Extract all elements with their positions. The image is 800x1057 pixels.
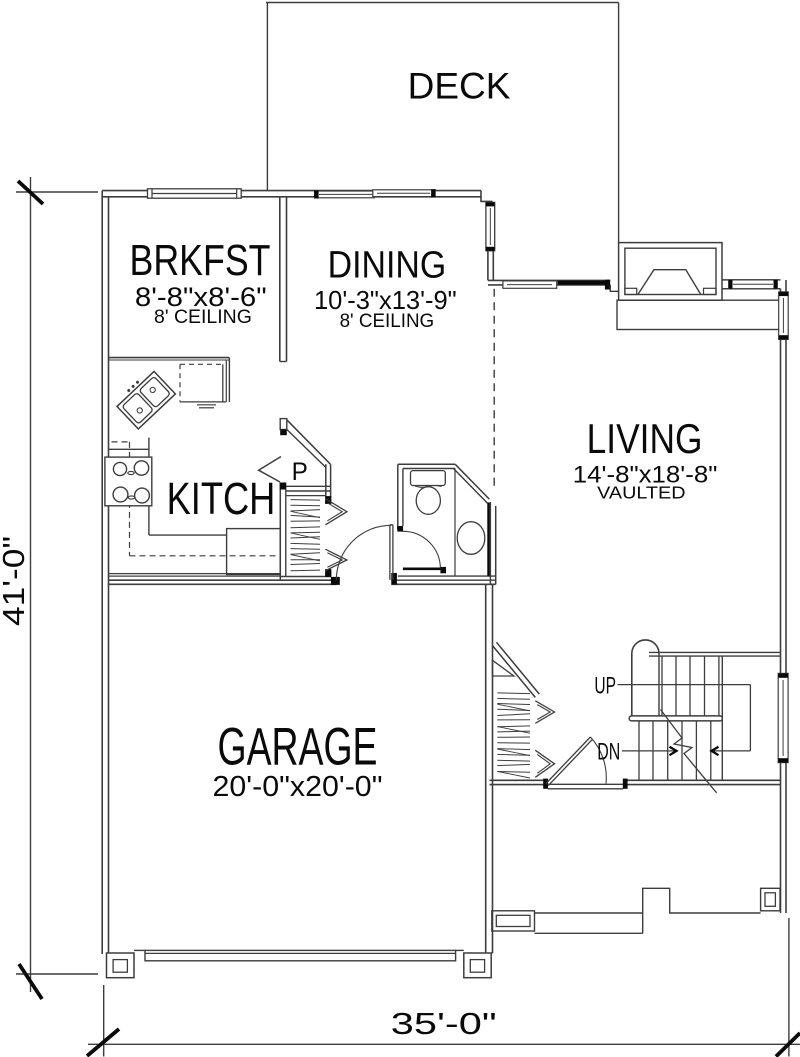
svg-text:DINING: DINING (328, 244, 447, 286)
svg-text:8' CEILING: 8' CEILING (340, 310, 435, 332)
svg-text:35'-0": 35'-0" (391, 1006, 497, 1041)
svg-text:VAULTED: VAULTED (597, 483, 685, 503)
svg-text:8' CEILING: 8' CEILING (154, 306, 252, 328)
svg-text:DN: DN (597, 739, 620, 766)
svg-text:DECK: DECK (408, 64, 511, 106)
svg-text:LIVING: LIVING (587, 415, 703, 462)
svg-text:41'-0": 41'-0" (0, 536, 31, 626)
svg-text:BRKFST: BRKFST (130, 236, 271, 285)
svg-text:UP: UP (594, 673, 616, 700)
svg-text:20'-0"x20'-0": 20'-0"x20'-0" (213, 771, 383, 803)
svg-text:P: P (292, 458, 308, 486)
svg-text:GARAGE: GARAGE (218, 719, 378, 777)
svg-text:KITCH: KITCH (167, 473, 276, 524)
